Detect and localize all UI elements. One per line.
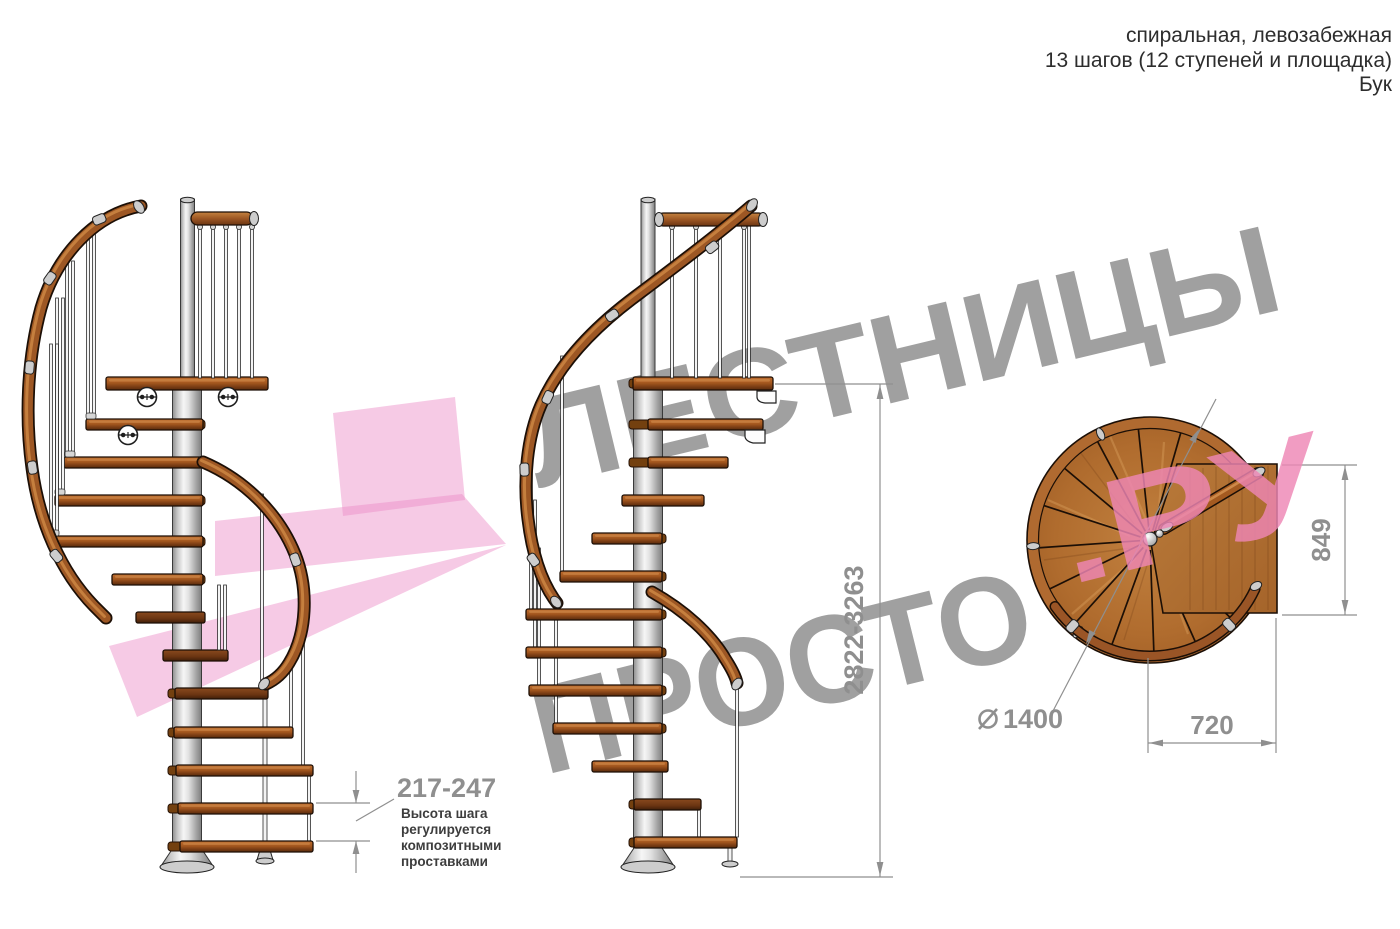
baluster xyxy=(698,810,701,837)
diameter-label: 1400 xyxy=(1003,704,1063,734)
drawing-header: спиральная, левозабежная 13 шагов (12 ст… xyxy=(1045,24,1393,96)
baluster xyxy=(302,633,305,765)
note-line3: композитными xyxy=(401,838,501,853)
header-type: спиральная, левозабежная xyxy=(1126,24,1392,47)
total-height-label: 2822-3263 xyxy=(839,565,869,694)
header-material: Бук xyxy=(1359,73,1393,96)
left-mast xyxy=(181,199,195,384)
left-pole-base-plate xyxy=(160,861,214,873)
left-top-handrail xyxy=(191,212,253,225)
header-steps: 13 шагов (12 ступеней и площадка) xyxy=(1045,49,1392,72)
landing-width-label: 720 xyxy=(1190,710,1233,740)
staircase-drawing-page: ЛЕСТНИЦЫ ПРОСТО xyxy=(0,0,1400,929)
step-height-label: 217-247 xyxy=(397,773,496,803)
note-line4: проставками xyxy=(401,854,488,869)
note-line1: Высота шага xyxy=(401,806,488,821)
wall-bracket xyxy=(745,430,765,443)
technical-drawing: ЛЕСТНИЦЫ ПРОСТО xyxy=(0,0,1400,929)
left-mast-cap xyxy=(181,197,195,203)
diameter-icon xyxy=(979,709,997,729)
step-height-note: Высота шага регулируется композитными пр… xyxy=(401,806,501,869)
rim-baluster-dot xyxy=(1027,542,1040,550)
note-line2: регулируется xyxy=(401,822,491,837)
center-mast-cap xyxy=(641,197,655,203)
baluster xyxy=(308,776,311,803)
baluster xyxy=(561,356,564,571)
post-foot-plate xyxy=(256,858,274,864)
support-post xyxy=(263,699,267,860)
baluster xyxy=(290,664,293,727)
wall-bracket xyxy=(757,391,776,403)
baluster xyxy=(308,814,311,841)
baluster xyxy=(736,688,739,837)
baluster xyxy=(555,606,558,723)
post-foot-plate xyxy=(722,861,738,867)
baluster xyxy=(261,494,264,684)
center-pole-base-plate xyxy=(621,861,675,873)
dimension-step-height: 217-247 Высота шага регулируется компози… xyxy=(316,771,501,873)
